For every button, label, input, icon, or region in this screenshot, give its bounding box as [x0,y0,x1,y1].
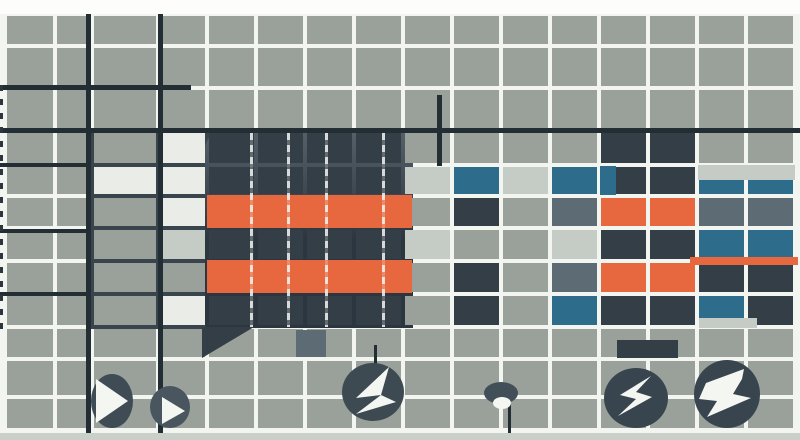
vertical-rule-mid [158,14,163,433]
slate-tile-below-block [296,330,326,357]
light-strip-right-top [698,165,795,180]
grid-tile [601,230,646,259]
grid-tile [650,16,695,44]
grid-tile [699,48,744,86]
grid-tile [650,90,695,129]
grid-tile [650,230,695,259]
grid-tile [405,167,450,194]
grid-tile [748,16,793,44]
grid-tile [258,399,303,428]
grid-tile [650,48,695,86]
grid-tile [94,230,156,259]
grid-tile [356,48,401,86]
grid-tile [748,399,793,428]
grid-tile [307,361,352,395]
grid-tile [405,48,450,86]
grid-tile [748,48,793,86]
grid-tile [454,167,499,194]
grid-tile [552,399,597,428]
top-strip [0,0,800,14]
grid-tile [699,198,744,226]
grid-tile [552,296,597,325]
grid-tile [209,48,254,86]
grid-tile [699,329,744,357]
grid-tile [307,16,352,44]
grid-tile [699,16,744,44]
grid-tile [258,167,303,194]
grid-tile [94,399,156,428]
grid-tile [307,167,352,194]
teal-sliver [600,166,616,195]
grid-tile [454,198,499,226]
grid-tile [552,263,597,292]
block-gridline [250,133,253,327]
grid-tile [356,90,401,129]
grid-tile [356,296,401,325]
grid-tile [160,48,205,86]
grid-tile [454,329,499,357]
grid-tile [405,361,450,395]
grid-tile [748,133,793,163]
grid-tile [7,230,53,259]
vertical-rule-left [86,14,91,433]
grid-tile [650,133,695,163]
vertical-segment-above-badge [374,345,377,368]
grid-tile [748,90,793,129]
grid-tile [405,399,450,428]
grid-tile [7,329,53,357]
grid-tile [748,329,793,357]
grid-tile [503,133,548,163]
grid-tile [601,263,646,292]
grid-tile [601,399,646,428]
grid-tile [503,198,548,226]
grid-tile [699,90,744,129]
left-band-dark-line-1 [0,163,90,167]
grid-tile [209,16,254,44]
grid-tile [405,16,450,44]
grid-tile [160,133,205,163]
grid-tile [307,399,352,428]
grid-tile [209,296,254,325]
grid-tile [552,230,597,259]
grid-tile [748,230,793,259]
grid-tile [503,296,548,325]
stem-below-dome [508,402,511,433]
grid-tile [552,198,597,226]
grid-tile [209,361,254,395]
grid-tile [94,16,156,44]
grid-tile [601,198,646,226]
grid-tile [356,361,401,395]
grid-tile [160,198,205,226]
grid-tile [356,329,401,357]
left-band-dark-line-2 [0,229,88,233]
grid-tile [94,263,156,292]
abstract-mosaic-canvas [0,0,800,440]
grid-tile [552,361,597,395]
grid-tile [7,399,53,428]
grid-tile [748,361,793,395]
grid-tile [94,361,156,395]
grid-tile [601,90,646,129]
grid-tile [454,133,499,163]
grid-tile [160,167,205,194]
grid-tile [503,329,548,357]
grid-tile [356,230,401,259]
grid-tile [258,296,303,325]
grid-tile [258,16,303,44]
grid-tile [307,48,352,86]
grid-tile [7,133,53,163]
grid-tile [454,48,499,86]
grid-tile [258,133,303,163]
grid-tile [454,296,499,325]
grid-tile [160,263,205,292]
grid-tile [258,230,303,259]
grid-tile [503,230,548,259]
grid-tile [454,263,499,292]
block-gridline [287,133,290,327]
grid-tile [258,90,303,129]
grid-tile [7,90,53,129]
grid-tile [7,48,53,86]
grid-tile [454,230,499,259]
grid-tile [748,198,793,226]
vertical-segment-center [437,95,442,166]
grid-tile [503,167,548,194]
grid-tile [209,167,254,194]
grid-tile [601,361,646,395]
grid-tile [405,133,450,163]
grid-tile [552,329,597,357]
grid-tile [650,263,695,292]
grid-tile [454,90,499,129]
grid-tile [503,48,548,86]
grid-tile [307,296,352,325]
grid-tile [552,48,597,86]
grid-tile [160,361,205,395]
grid-tile [160,296,205,325]
grid-tile [307,133,352,163]
grid-tile [209,90,254,129]
grid-tile [307,90,352,129]
grid-tile [405,230,450,259]
grid-tile [552,16,597,44]
horizontal-rule-full [0,128,800,133]
grid-tile [94,296,156,325]
grid-tile [356,133,401,163]
grid-tile [552,167,597,194]
grid-tile [699,399,744,428]
grid-tile [356,16,401,44]
grid-tile [552,90,597,129]
grid-tile [699,230,744,259]
grid-tile [7,167,53,194]
block-gridline [325,133,328,327]
grid-tile [503,361,548,395]
grid-tile [7,198,53,226]
grid-tile [209,133,254,163]
grid-tile [209,230,254,259]
grid-tile [699,263,744,292]
grid-tile [209,399,254,428]
grid-tile [160,90,205,129]
grid-tile [356,167,401,194]
left-band-dark-line-3 [0,292,88,296]
left-edge-dashes [0,85,3,330]
grid-tile [7,263,53,292]
dark-tile-above-badge [617,340,678,358]
grid-tile [699,133,744,163]
grid-tile [7,296,53,325]
grid-tile [160,329,205,357]
orange-thin-strip-right [690,257,798,265]
grid-tile [258,361,303,395]
grid-tile [650,167,695,194]
grid-tile [160,230,205,259]
grid-tile [454,361,499,395]
grid-tile [503,263,548,292]
grid-tile [405,329,450,357]
grid-tile [94,167,156,194]
grid-tile [7,16,53,44]
grid-tile [454,16,499,44]
grid-tile [356,399,401,428]
grid-tile [699,361,744,395]
block-gridline [382,133,385,327]
grid-tile [601,296,646,325]
grid-tile [307,230,352,259]
grid-tile [258,48,303,86]
grid-tile [601,48,646,86]
grid-tile [405,296,450,325]
light-strip-right-bottom [699,318,757,328]
grid-tile [748,263,793,292]
bottom-strip [0,433,800,440]
grid-tile [650,296,695,325]
grid-tile [94,329,156,357]
grid-tile [650,361,695,395]
grid-tile [160,399,205,428]
grid-tile [503,16,548,44]
grid-tile [650,198,695,226]
grid-tile [7,361,53,395]
grid-tile [94,198,156,226]
horizontal-rule-upper-left [0,85,191,90]
grid-tile [650,399,695,428]
grid-tile [601,16,646,44]
grid-tile [94,90,156,129]
grid-tile [454,399,499,428]
grid-tile [601,133,646,163]
grid-tile [94,133,156,163]
grid-tile [405,90,450,129]
grid-tile [503,90,548,129]
grid-tile [94,48,156,86]
grid-tile [160,16,205,44]
grid-tile [552,133,597,163]
